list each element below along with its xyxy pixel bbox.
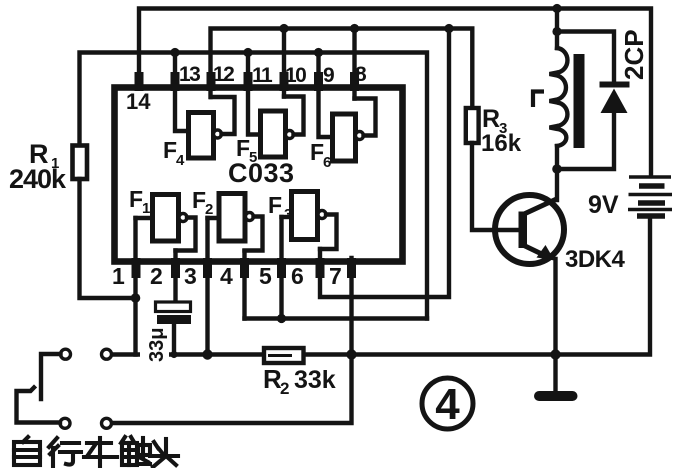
svg-text:4: 4 <box>435 380 460 429</box>
svg-text:11: 11 <box>252 64 273 87</box>
svg-text:9: 9 <box>323 64 334 87</box>
svg-text:R: R <box>482 105 500 133</box>
svg-text:2: 2 <box>205 201 213 218</box>
svg-text:33k: 33k <box>294 366 336 394</box>
svg-text:13: 13 <box>179 63 200 86</box>
svg-text:6: 6 <box>323 154 331 171</box>
svg-text:1: 1 <box>142 200 150 217</box>
svg-text:F: F <box>192 187 206 213</box>
svg-text:C033: C033 <box>228 158 295 188</box>
svg-text:4: 4 <box>220 263 233 289</box>
svg-text:F: F <box>236 135 250 161</box>
svg-text:5: 5 <box>259 263 272 289</box>
svg-text:16k: 16k <box>481 130 522 157</box>
svg-text:6: 6 <box>291 263 304 289</box>
svg-text:F: F <box>163 137 177 163</box>
svg-text:2: 2 <box>150 263 163 289</box>
svg-text:1: 1 <box>112 263 125 289</box>
svg-text:3: 3 <box>184 263 197 289</box>
svg-text:2: 2 <box>280 379 289 398</box>
svg-text:10: 10 <box>285 64 306 87</box>
svg-text:5: 5 <box>249 149 257 166</box>
svg-text:F: F <box>310 139 324 165</box>
svg-text:33μ: 33μ <box>146 328 168 362</box>
svg-text:12: 12 <box>213 63 234 86</box>
svg-text:4: 4 <box>176 152 185 169</box>
svg-text:3: 3 <box>284 206 292 223</box>
svg-text:F: F <box>268 192 282 218</box>
svg-text:240k: 240k <box>9 164 67 194</box>
svg-text:9V: 9V <box>588 191 619 219</box>
svg-text:3DK4: 3DK4 <box>565 246 626 273</box>
svg-text:F: F <box>129 186 143 212</box>
svg-text:2CP: 2CP <box>619 29 649 80</box>
svg-text:14: 14 <box>126 89 151 114</box>
svg-text:7: 7 <box>329 263 342 289</box>
